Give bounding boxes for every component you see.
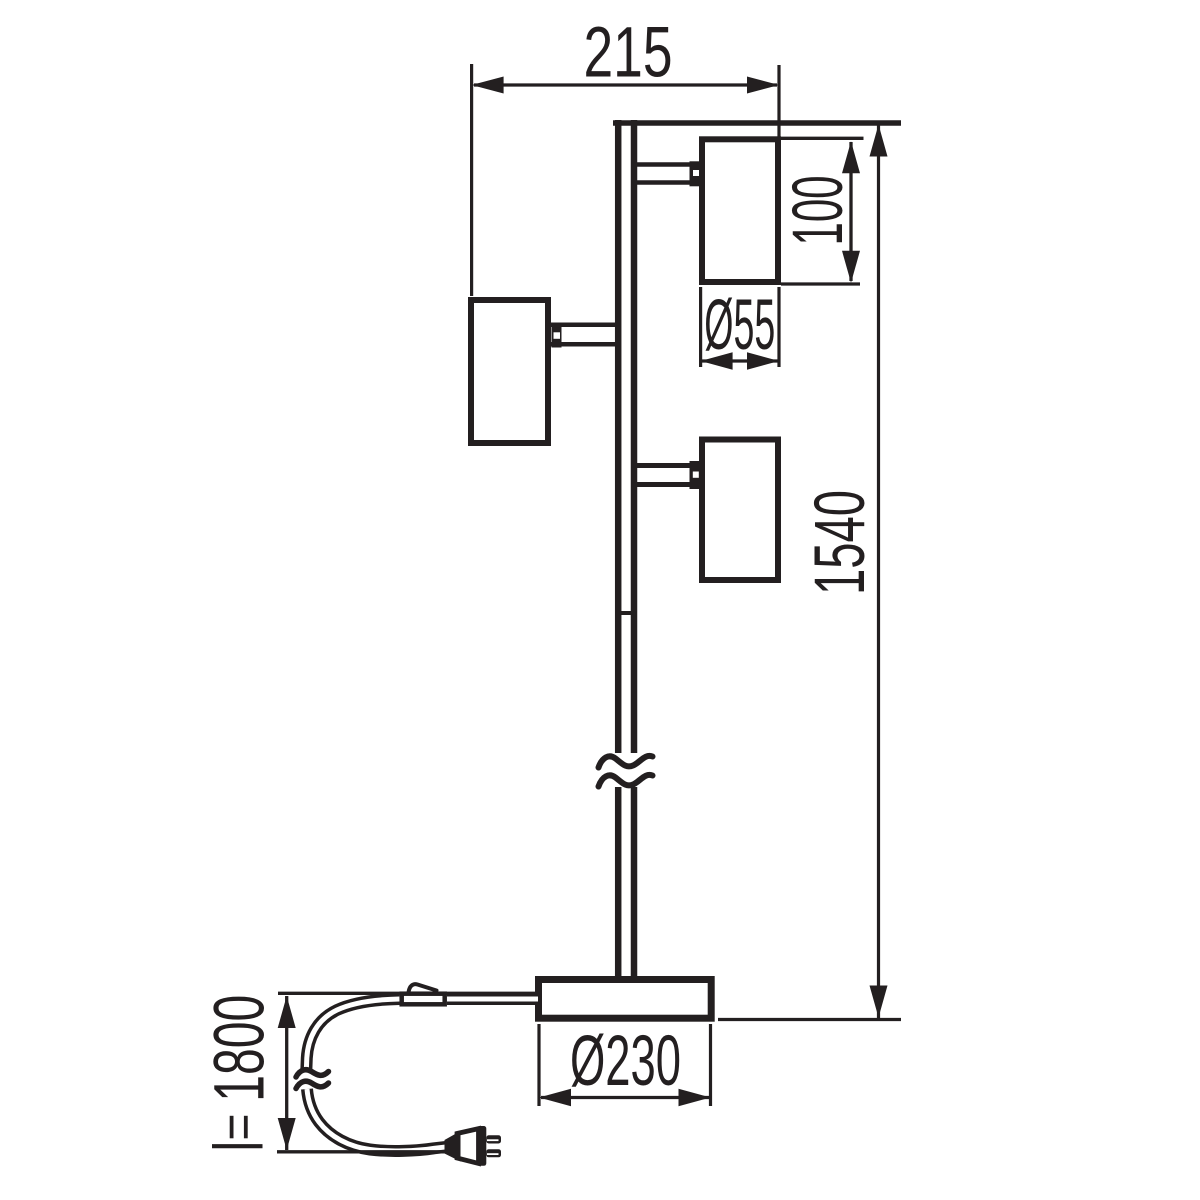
svg-text:100: 100	[779, 176, 858, 246]
svg-text:Ø230: Ø230	[570, 1022, 681, 1101]
svg-text:1800: 1800	[200, 995, 279, 1102]
svg-text:Ø55: Ø55	[704, 286, 775, 365]
svg-text:1540: 1540	[801, 490, 880, 595]
svg-text:215: 215	[584, 14, 673, 93]
